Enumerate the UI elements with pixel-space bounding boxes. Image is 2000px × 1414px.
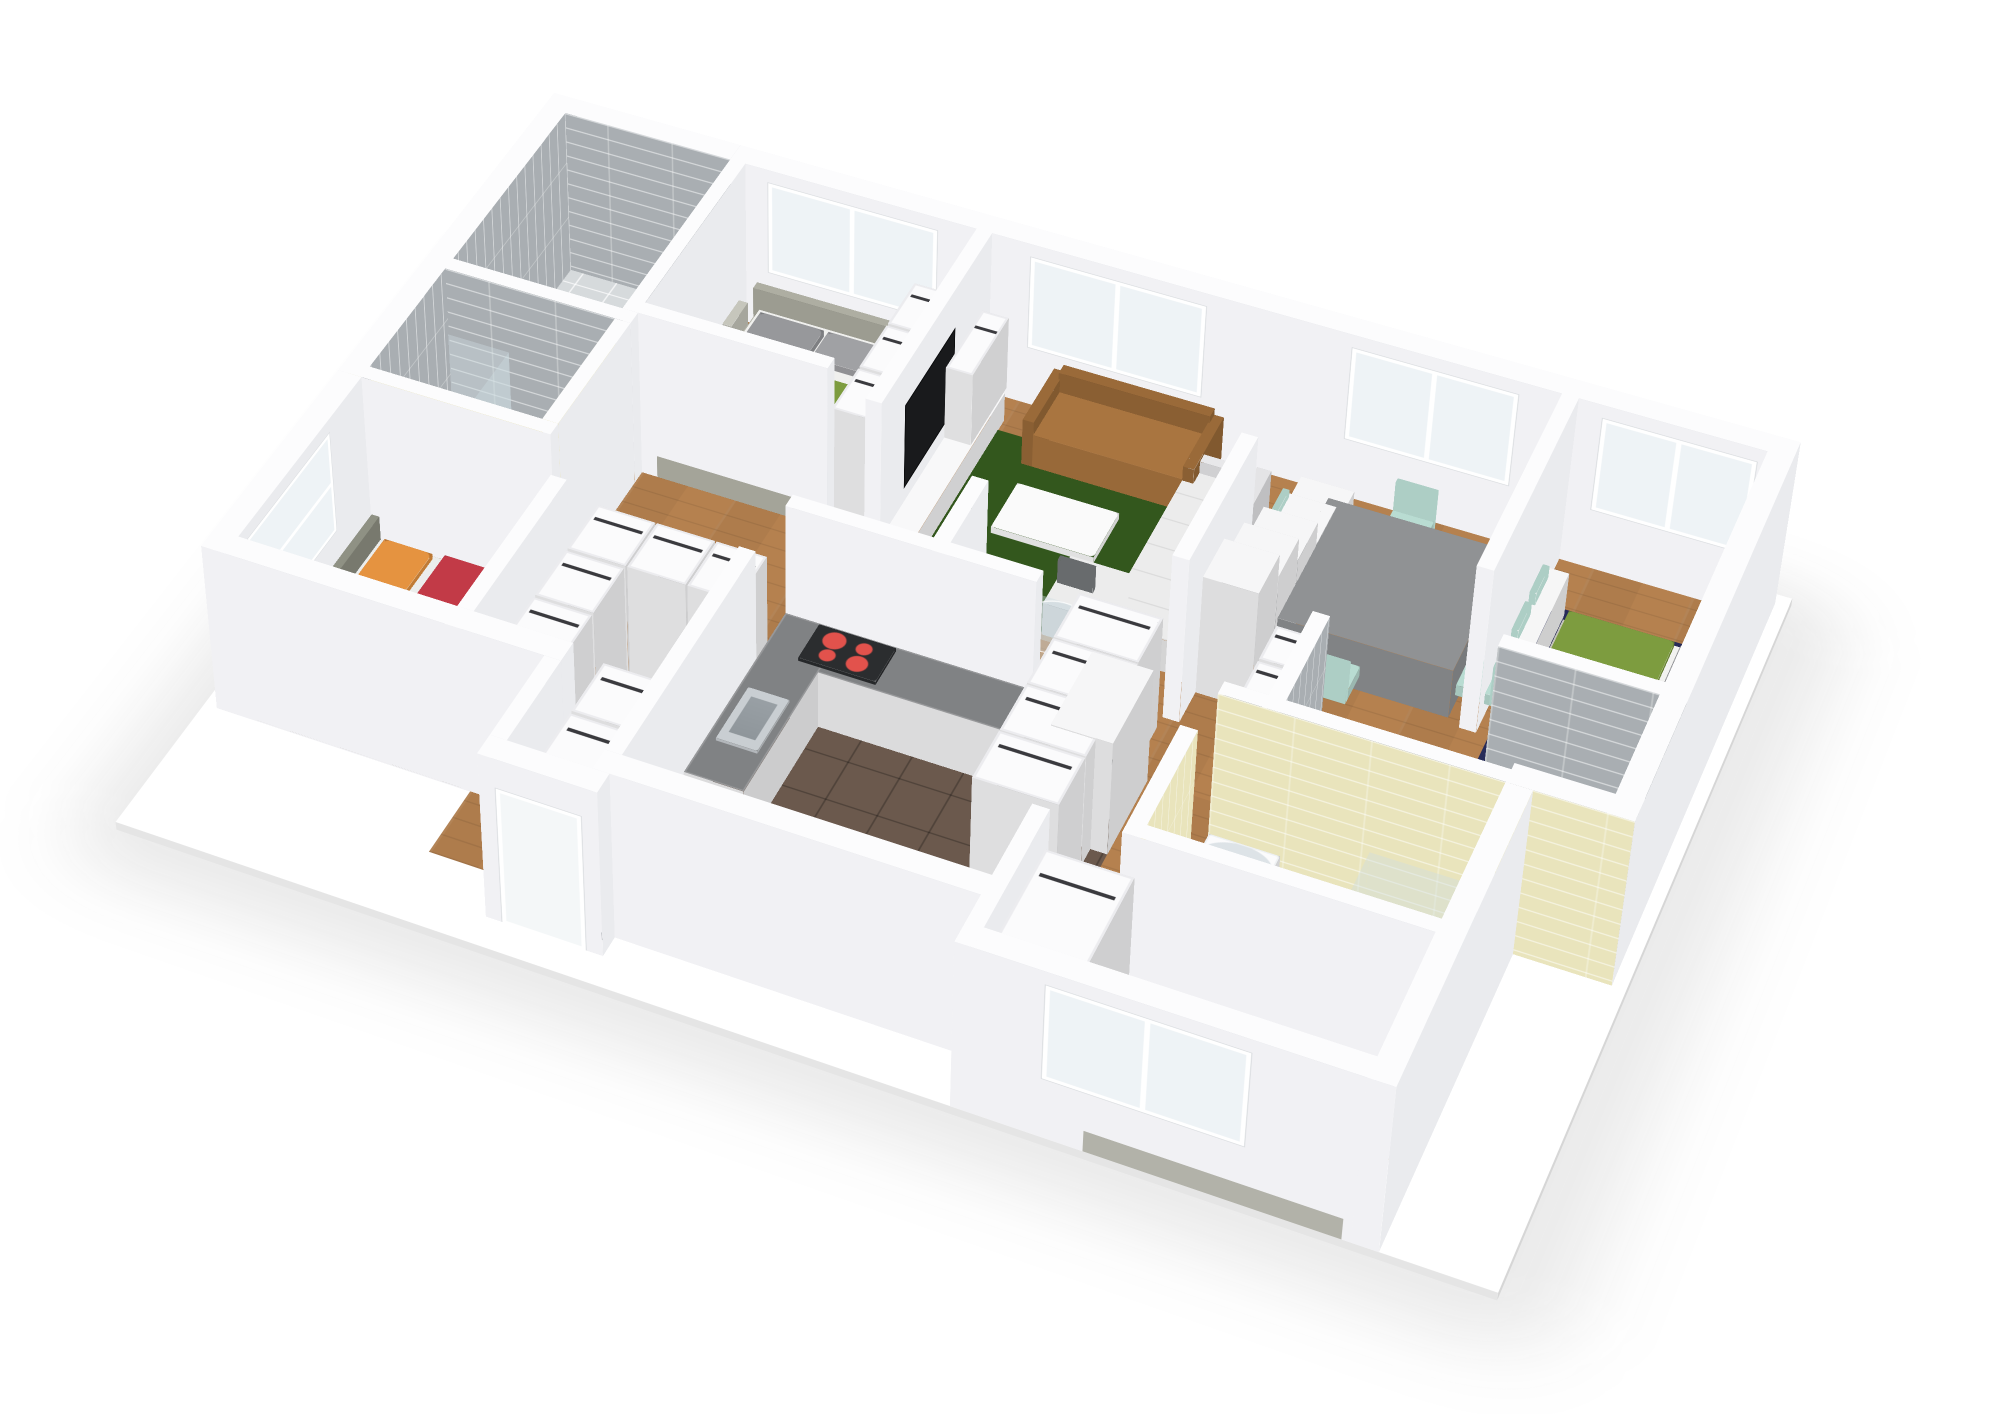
floorplan-viewport xyxy=(0,0,2000,1414)
wall-bedroom-nw-south-side-e xyxy=(827,358,835,529)
tv-shelf-cubes-side-s xyxy=(944,368,972,446)
